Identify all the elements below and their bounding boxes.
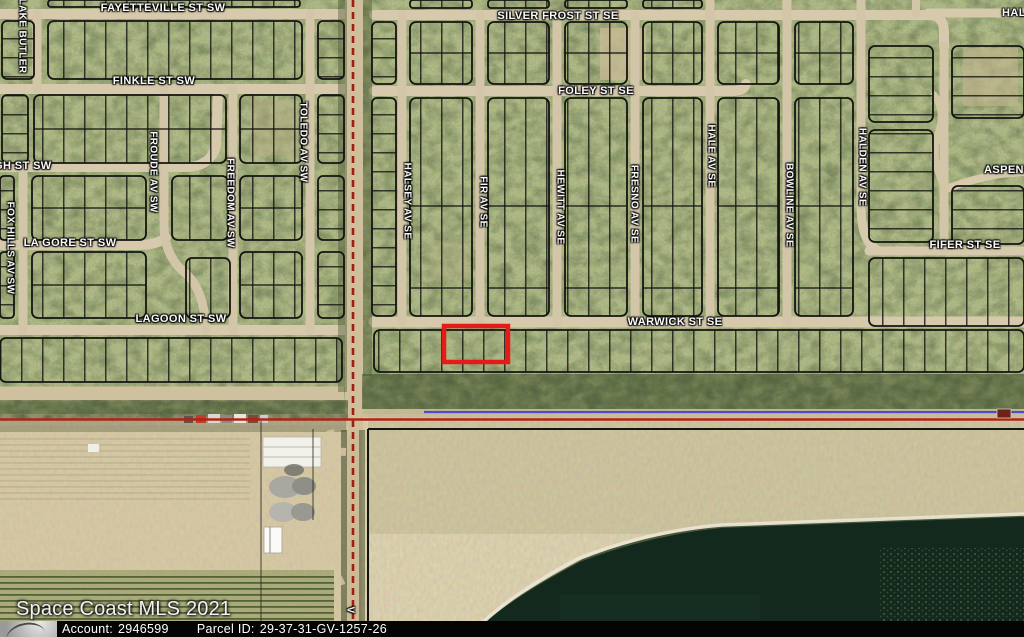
mls-logo bbox=[0, 621, 57, 637]
street-label-warwick-st-se: WARWICK ST SE bbox=[628, 316, 723, 328]
street-label-gh-st-sw: GH ST SW bbox=[0, 160, 52, 172]
footer-parcel-info: Account: 2946599 Parcel ID: 29-37-31-GV-… bbox=[62, 621, 392, 637]
street-label-hewitt-av-se: HEWITT AV SE bbox=[555, 170, 566, 245]
street-label-silver-frost-st-se: SILVER FROST ST SE bbox=[497, 10, 618, 22]
street-label-finkle-st-sw: FINKLE ST SW bbox=[113, 75, 195, 87]
street-label-fir-av-se: FIR AV SE bbox=[478, 176, 489, 227]
street-label-v-partial: V bbox=[345, 606, 356, 613]
street-label-la-gore-st-sw: LA GORE ST SW bbox=[24, 237, 117, 249]
street-label-toledo-av-sw: TOLEDO AV SW bbox=[298, 102, 309, 183]
street-label-freedom-av-sw: FREEDOM AV SW bbox=[225, 158, 236, 248]
street-label-halden-av-se: HALDEN AV SE bbox=[857, 128, 868, 206]
street-label-fayetteville-st-sw: FAYETTEVILLE ST SW bbox=[101, 2, 226, 14]
street-label-hal: HAL bbox=[1002, 7, 1024, 19]
map-canvas[interactable]: FAYETTEVILLE ST SW SILVER FROST ST SE FI… bbox=[0, 0, 1024, 637]
account-value: 2946599 bbox=[118, 622, 169, 636]
account-label: Account: bbox=[62, 622, 113, 636]
street-label-aspen-r: ASPEN R bbox=[984, 164, 1024, 176]
street-label-fresno-av-se: FRESNO AV SE bbox=[629, 165, 640, 243]
street-label-froude-av-sw: FROUDE AV SW bbox=[148, 131, 159, 212]
footer-bar: Account: 2946599 Parcel ID: 29-37-31-GV-… bbox=[0, 621, 1024, 637]
street-label-halsey-av-se: HALSEY AV SE bbox=[402, 163, 413, 240]
street-label-hale-av-se: HALE AV SE bbox=[706, 125, 717, 188]
street-label-lake-butler: LAKE BUTLER bbox=[17, 0, 28, 73]
street-label-fox-hills-av-sw: FOX HILLS AV SW bbox=[5, 202, 16, 295]
street-label-bowline-av-se: BOWLINE AV SE bbox=[784, 163, 795, 247]
street-label-foley-st-se: FOLEY ST SE bbox=[558, 85, 634, 97]
parcel-id-label: Parcel ID: bbox=[197, 622, 255, 636]
mls-watermark: Space Coast MLS 2021 bbox=[16, 598, 231, 621]
parcel-id-value: 29-37-31-GV-1257-26 bbox=[260, 622, 387, 636]
street-label-fifer-st-se: FIFER ST SE bbox=[929, 239, 1000, 251]
street-label-lagoon-st-sw: LAGOON ST SW bbox=[136, 313, 227, 325]
